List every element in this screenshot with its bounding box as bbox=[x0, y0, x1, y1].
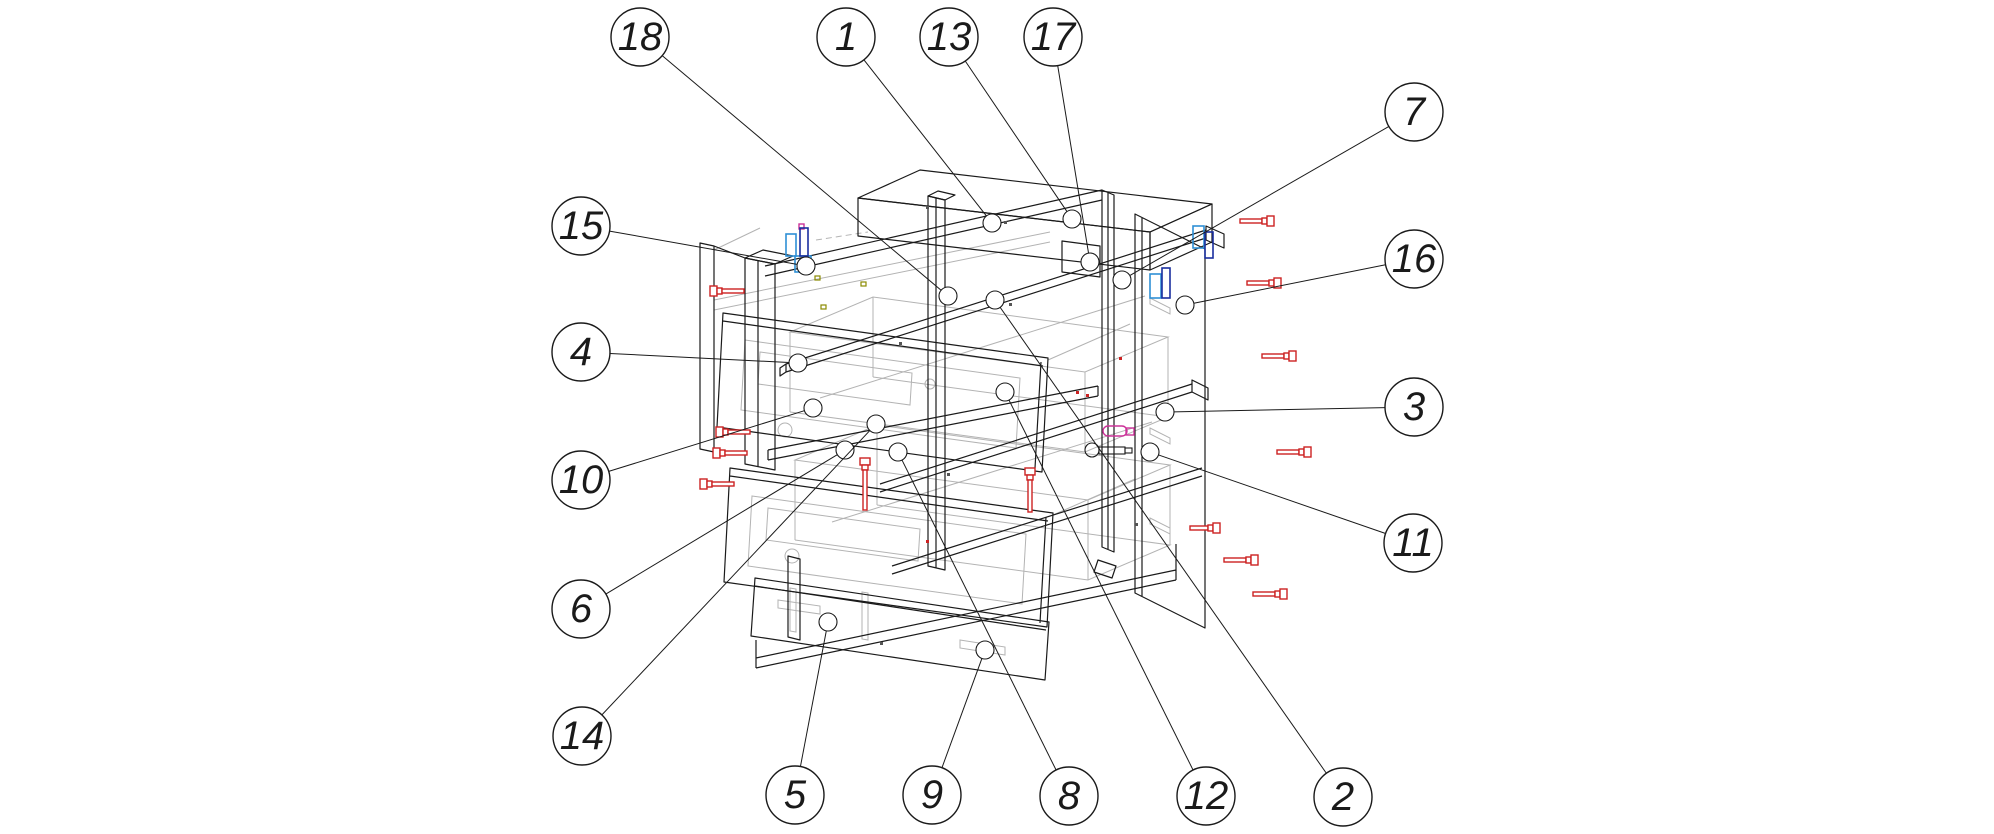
target-ring-icon bbox=[1141, 443, 1159, 461]
screw-icon bbox=[1025, 468, 1035, 512]
leader-line bbox=[1000, 307, 1326, 773]
callout-balloons-layer: 181131771631115410614598122 bbox=[552, 8, 1443, 826]
assembly-diagram-page: 181131771631115410614598122 bbox=[0, 0, 1994, 834]
callout-balloon-3: 3 bbox=[1156, 378, 1443, 436]
target-ring-icon bbox=[1176, 296, 1194, 314]
target-ring-icon bbox=[996, 383, 1014, 401]
balloon-number: 2 bbox=[1331, 775, 1354, 819]
leader-line bbox=[902, 460, 1056, 770]
balloon-number: 6 bbox=[570, 587, 593, 631]
exploded-view-drawing: 181131771631115410614598122 bbox=[0, 0, 1994, 834]
balloon-number: 3 bbox=[1403, 385, 1425, 429]
callout-balloon-17: 17 bbox=[1024, 8, 1099, 271]
balloon-number: 12 bbox=[1184, 774, 1229, 818]
screw-icon bbox=[1224, 555, 1258, 565]
balloon-number: 18 bbox=[618, 15, 663, 59]
screw-icon bbox=[713, 448, 747, 458]
balloon-number: 16 bbox=[1392, 237, 1437, 281]
balloon-number: 9 bbox=[921, 773, 943, 817]
callout-balloon-5: 5 bbox=[766, 613, 837, 824]
callout-balloon-9: 9 bbox=[903, 641, 994, 824]
leader-line bbox=[864, 60, 987, 216]
hinge-brackets-layer bbox=[786, 226, 1213, 298]
screw-icon bbox=[860, 458, 870, 510]
target-ring-icon bbox=[986, 291, 1004, 309]
leader-line bbox=[1159, 455, 1386, 534]
screw-icon bbox=[1240, 216, 1274, 226]
screw-icon bbox=[1277, 447, 1311, 457]
balloon-number: 13 bbox=[927, 15, 972, 59]
leader-line bbox=[965, 61, 1067, 212]
balloon-number: 11 bbox=[1392, 521, 1434, 565]
target-ring-icon bbox=[1081, 253, 1099, 271]
leader-line bbox=[1174, 408, 1385, 412]
hinge-bracket-icon bbox=[1193, 226, 1204, 248]
callout-balloon-11: 11 bbox=[1141, 443, 1442, 572]
hinge-bracket-icon bbox=[1162, 268, 1170, 298]
target-ring-icon bbox=[939, 287, 957, 305]
screw-icon bbox=[1262, 351, 1296, 361]
callout-balloon-4: 4 bbox=[552, 323, 807, 381]
cabinet-carcass-lines bbox=[700, 170, 1224, 680]
target-ring-icon bbox=[1063, 210, 1081, 228]
balloon-number: 1 bbox=[835, 15, 857, 59]
leader-line bbox=[800, 631, 826, 767]
target-ring-icon bbox=[1113, 271, 1131, 289]
balloon-number: 14 bbox=[560, 714, 605, 758]
balloon-number: 7 bbox=[1403, 90, 1427, 134]
screws-layer bbox=[700, 216, 1311, 599]
leader-line bbox=[1194, 265, 1386, 304]
balloon-number: 8 bbox=[1058, 774, 1081, 818]
callout-balloon-16: 16 bbox=[1176, 230, 1443, 314]
hinge-bracket-icon bbox=[1150, 274, 1161, 298]
target-ring-icon bbox=[976, 641, 994, 659]
hinge-bracket-icon bbox=[786, 234, 796, 256]
target-ring-icon bbox=[983, 214, 1001, 232]
target-ring-icon bbox=[867, 415, 885, 433]
balloon-number: 4 bbox=[570, 330, 592, 374]
target-ring-icon bbox=[889, 443, 907, 461]
target-ring-icon bbox=[789, 354, 807, 372]
screw-icon bbox=[1253, 589, 1287, 599]
target-ring-icon bbox=[804, 399, 822, 417]
target-ring-icon bbox=[797, 257, 815, 275]
hinge-bracket-icon bbox=[800, 228, 808, 256]
balloon-number: 10 bbox=[559, 458, 604, 502]
leader-line bbox=[1130, 126, 1389, 275]
balloon-number: 17 bbox=[1031, 15, 1077, 59]
balloon-number: 5 bbox=[784, 773, 807, 817]
leader-line bbox=[942, 658, 982, 767]
balloon-number: 15 bbox=[559, 204, 604, 248]
leader-line bbox=[662, 56, 941, 291]
leader-line bbox=[610, 231, 798, 264]
target-ring-icon bbox=[819, 613, 837, 631]
callout-balloon-12: 12 bbox=[996, 383, 1235, 825]
target-ring-icon bbox=[1156, 403, 1174, 421]
